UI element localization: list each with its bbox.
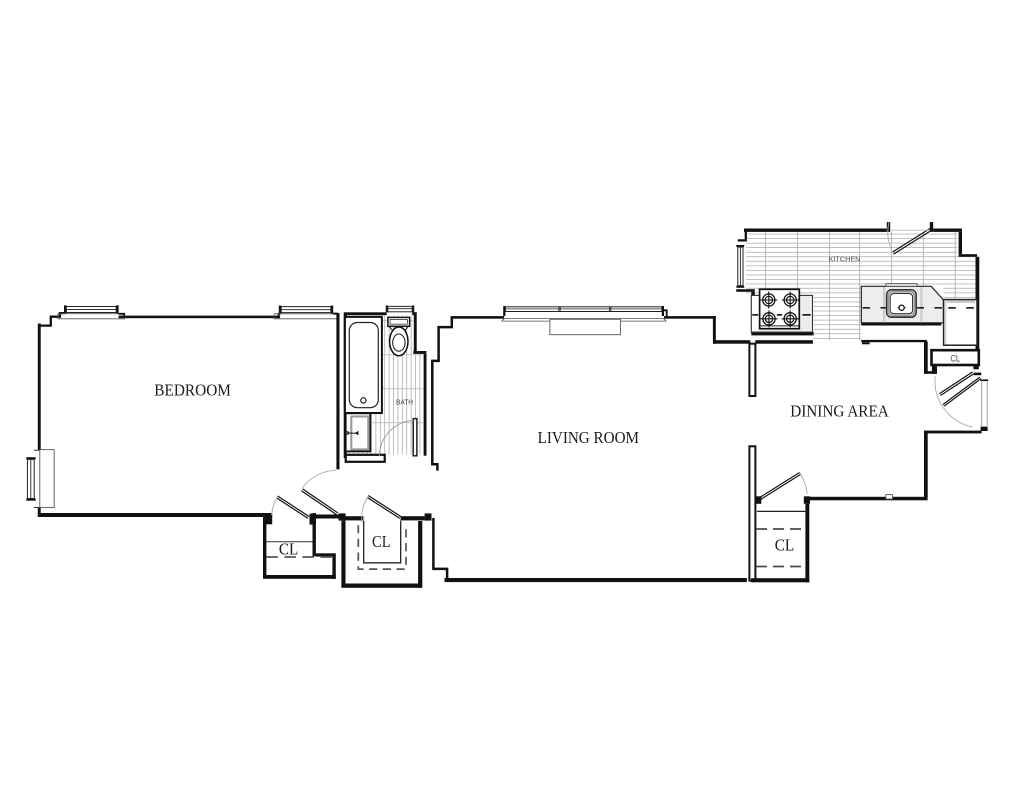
svg-text:BATH: BATH: [396, 399, 413, 406]
svg-text:CL: CL: [775, 536, 795, 555]
svg-text:DINING AREA: DINING AREA: [790, 402, 889, 421]
svg-text:CL: CL: [950, 354, 960, 364]
svg-text:KITCHEN: KITCHEN: [829, 255, 861, 264]
svg-text:CL: CL: [372, 532, 391, 551]
svg-text:CL: CL: [279, 540, 298, 559]
svg-text:BEDROOM: BEDROOM: [154, 381, 231, 400]
svg-text:LIVING ROOM: LIVING ROOM: [538, 428, 639, 447]
